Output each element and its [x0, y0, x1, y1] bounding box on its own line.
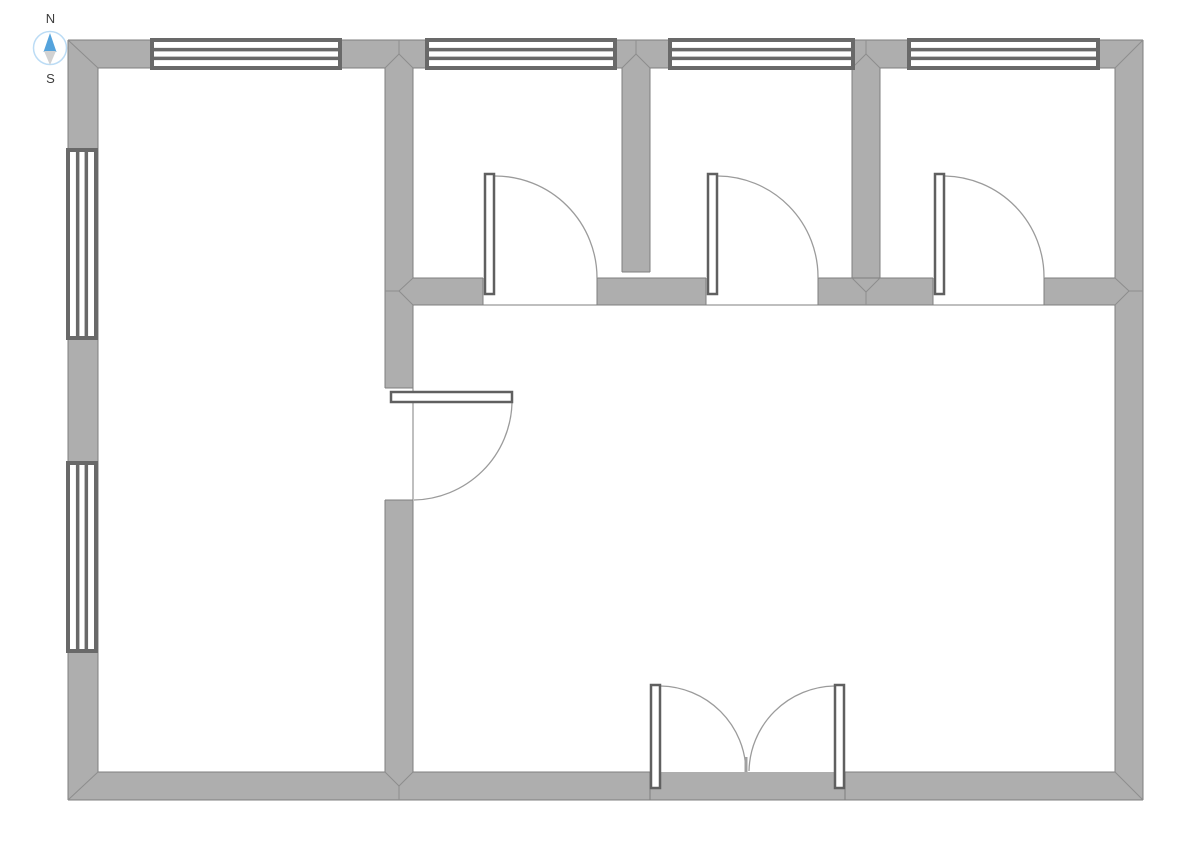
wall-divider-room2-room3 [852, 68, 880, 278]
wall-corridor-segment-2 [597, 278, 706, 305]
window-north-3 [670, 40, 853, 68]
window-west-2 [68, 463, 96, 651]
wall-interior-vertical-upper [385, 68, 413, 388]
double-door-right-leaf [835, 685, 844, 788]
wall-interior-vertical-lower [385, 500, 413, 772]
compass-south-label: S [46, 71, 55, 86]
window-west-1 [68, 150, 96, 338]
window-north-4 [909, 40, 1098, 68]
compass-north-label: N [46, 11, 55, 26]
wall-exterior-east [1115, 40, 1143, 800]
floor-plan-canvas: NS [0, 0, 1190, 842]
window-frame [68, 150, 96, 338]
floor-plan-page: NS [0, 0, 1190, 842]
wall-divider-room1-room2 [622, 68, 650, 272]
wall-corridor-segment-4 [1044, 278, 1115, 305]
wall-exterior-south [68, 772, 1143, 800]
plan-background [0, 0, 1190, 842]
window-frame [68, 463, 96, 651]
window-frame [427, 40, 615, 68]
window-north-2 [427, 40, 615, 68]
door-interior-west-leaf [391, 392, 512, 402]
wall-corridor-segment-1 [413, 278, 483, 305]
double-door-left-leaf [651, 685, 660, 788]
window-north-1 [152, 40, 340, 68]
door-room3-leaf [935, 174, 944, 294]
window-frame [909, 40, 1098, 68]
window-frame [670, 40, 853, 68]
door-room2-leaf [708, 174, 717, 294]
door-room1-leaf [485, 174, 494, 294]
window-frame [152, 40, 340, 68]
